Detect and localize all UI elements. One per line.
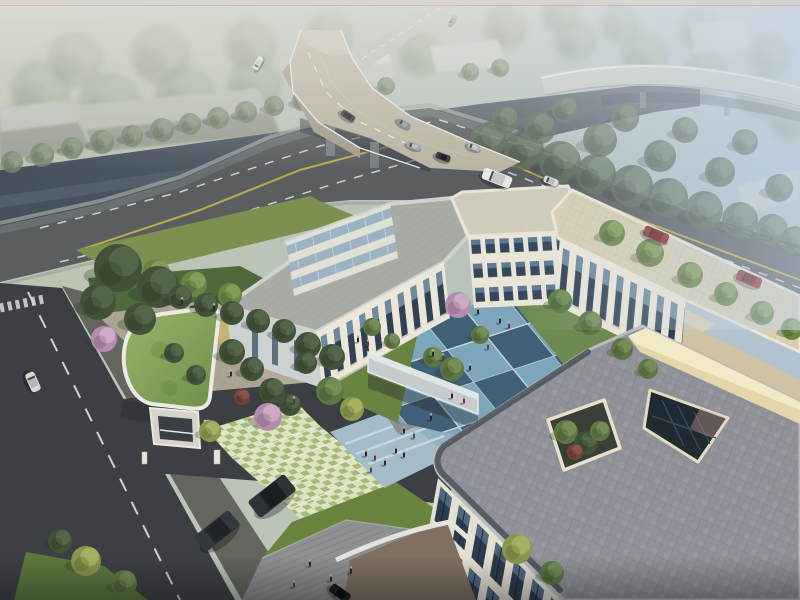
gate-opening bbox=[158, 416, 193, 442]
top-border-strip bbox=[0, 0, 800, 5]
gate-post bbox=[142, 452, 147, 464]
scene-canvas bbox=[0, 0, 800, 600]
architectural-rendering bbox=[0, 0, 800, 600]
gate-post bbox=[214, 450, 220, 464]
